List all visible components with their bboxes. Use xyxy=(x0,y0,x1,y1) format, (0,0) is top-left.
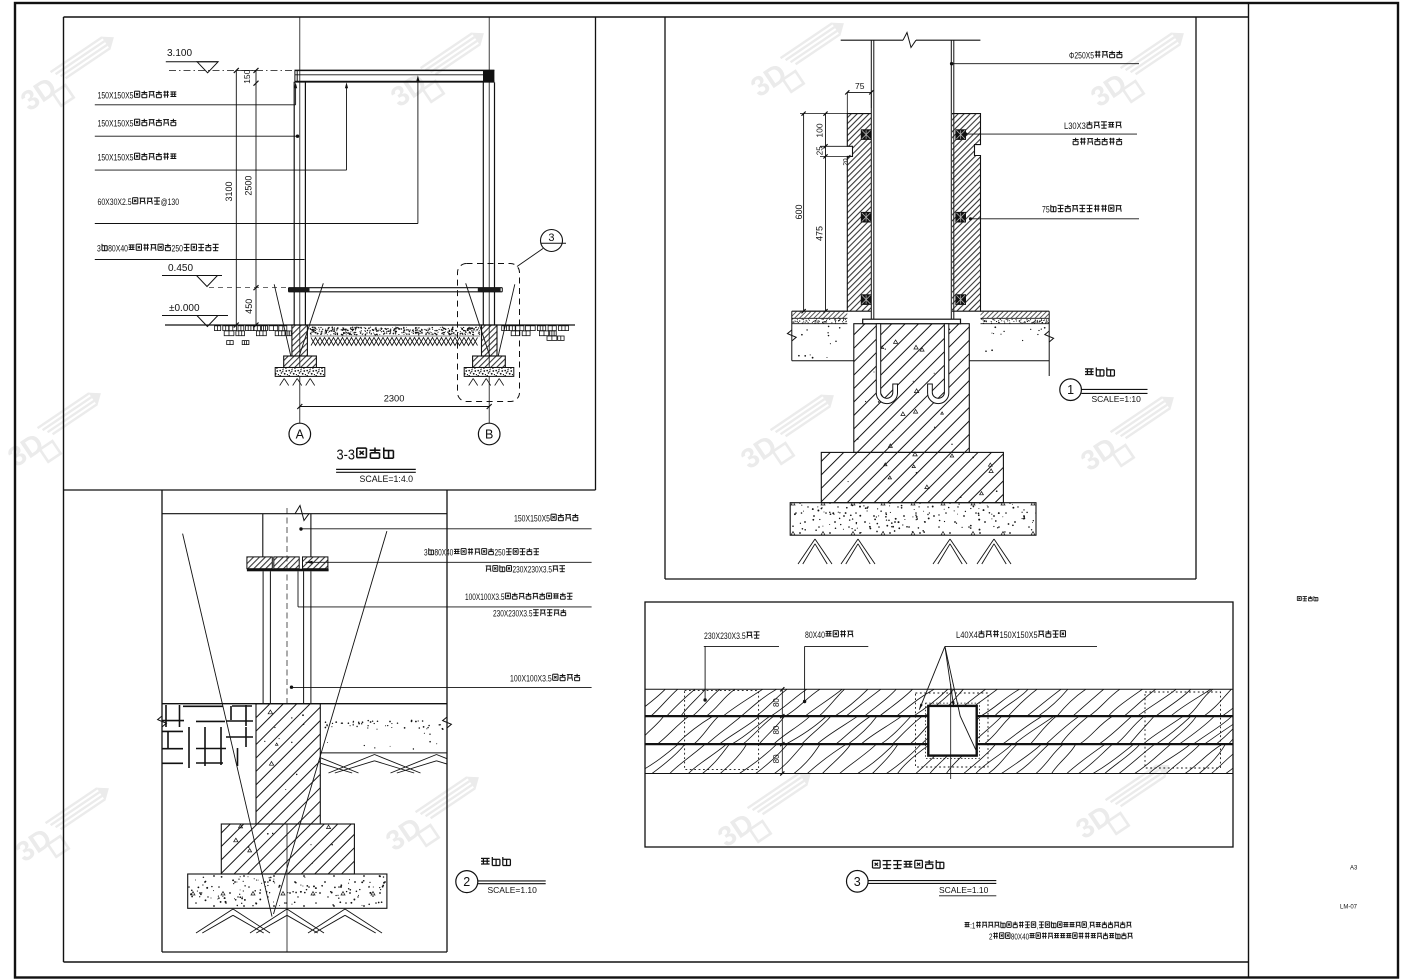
svg-text:150X150X5: 150X150X5 xyxy=(98,119,134,129)
svg-text:,: , xyxy=(1087,921,1089,931)
svg-text:475: 475 xyxy=(815,226,825,241)
svg-text:1: 1 xyxy=(1067,383,1074,397)
svg-text:250: 250 xyxy=(172,244,184,254)
svg-text:150X150X5: 150X150X5 xyxy=(1000,630,1038,640)
svg-text:80X40: 80X40 xyxy=(108,244,128,254)
svg-text:450: 450 xyxy=(244,299,254,314)
svg-text:100X100X3.5: 100X100X3.5 xyxy=(510,674,552,684)
svg-text:3-3: 3-3 xyxy=(337,448,356,464)
svg-text:@130: @130 xyxy=(161,197,180,207)
svg-text:80X40: 80X40 xyxy=(435,548,454,558)
svg-text:0.450: 0.450 xyxy=(168,263,193,274)
svg-text:,: , xyxy=(1037,921,1039,931)
svg-text:80X40: 80X40 xyxy=(805,630,825,640)
svg-text:SCALE=1:10: SCALE=1:10 xyxy=(1092,394,1142,404)
svg-text:80: 80 xyxy=(772,754,781,763)
svg-text:3: 3 xyxy=(548,232,554,244)
svg-text:SCALE=1:4.0: SCALE=1:4.0 xyxy=(360,474,414,484)
svg-text:150: 150 xyxy=(242,69,252,83)
svg-text:75: 75 xyxy=(855,81,865,91)
svg-text:80: 80 xyxy=(772,698,781,707)
svg-text:150X150X5: 150X150X5 xyxy=(514,514,550,524)
svg-text:±0.000: ±0.000 xyxy=(169,303,200,314)
svg-text:2300: 2300 xyxy=(384,394,405,404)
svg-text::1: :1 xyxy=(970,921,976,931)
svg-text:230X230X3.5: 230X230X3.5 xyxy=(493,609,533,619)
svg-text:2: 2 xyxy=(463,875,470,889)
svg-text:LM-07: LM-07 xyxy=(1340,905,1358,911)
svg-text:3: 3 xyxy=(424,548,428,558)
svg-text:2500: 2500 xyxy=(244,176,254,196)
svg-text:250: 250 xyxy=(495,548,506,558)
svg-text:75: 75 xyxy=(1042,205,1050,215)
svg-text:230X230X3.5: 230X230X3.5 xyxy=(513,565,553,575)
svg-text:100: 100 xyxy=(815,123,825,137)
svg-text:3.100: 3.100 xyxy=(167,48,192,59)
svg-text:25: 25 xyxy=(815,146,824,155)
svg-text:100X100X3.5: 100X100X3.5 xyxy=(465,592,505,602)
svg-text:3: 3 xyxy=(854,875,861,889)
svg-text:80X40: 80X40 xyxy=(1011,932,1029,942)
svg-text:3: 3 xyxy=(97,244,101,254)
svg-text:3100: 3100 xyxy=(224,181,234,201)
svg-text:150X150X5: 150X150X5 xyxy=(98,91,134,101)
svg-text:20: 20 xyxy=(842,158,849,166)
svg-text:60X30X2.5: 60X30X2.5 xyxy=(98,197,132,207)
svg-text:80: 80 xyxy=(772,725,781,734)
svg-text:230X230X3.5: 230X230X3.5 xyxy=(704,631,746,641)
svg-text:150X150X5: 150X150X5 xyxy=(98,153,134,163)
svg-text:L30X3: L30X3 xyxy=(1064,121,1086,131)
svg-text:L40X4: L40X4 xyxy=(956,630,978,640)
svg-text:B: B xyxy=(485,428,493,442)
svg-text:2: 2 xyxy=(989,932,993,942)
svg-text:A3: A3 xyxy=(1350,866,1358,872)
svg-text:SCALE=1.10: SCALE=1.10 xyxy=(939,885,989,895)
svg-text:Φ250X5: Φ250X5 xyxy=(1069,51,1094,61)
svg-text:SCALE=1.10: SCALE=1.10 xyxy=(488,885,538,895)
svg-text:A: A xyxy=(296,428,305,442)
svg-text:600: 600 xyxy=(794,204,804,219)
